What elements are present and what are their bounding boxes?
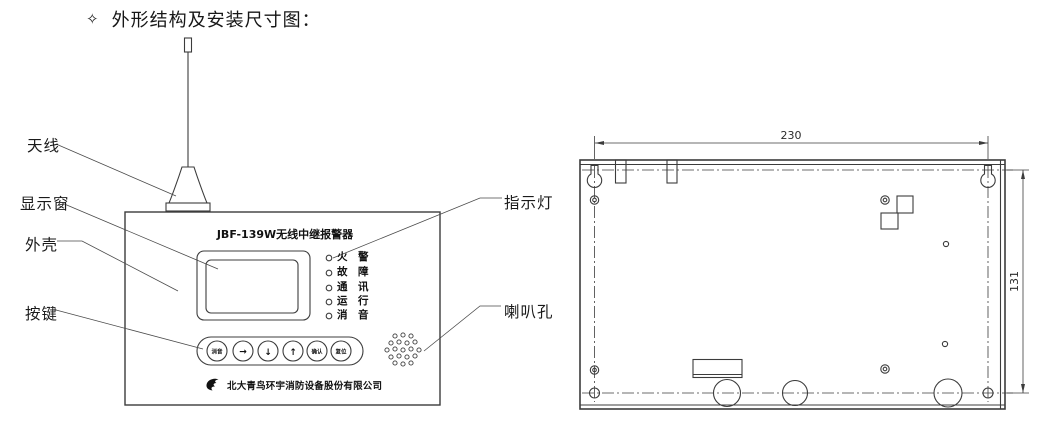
speaker-holes-cluster — [385, 333, 421, 366]
antenna-tip — [185, 38, 192, 52]
centerlines — [582, 166, 1013, 402]
led-comm — [326, 285, 332, 291]
antenna-drawing — [166, 38, 210, 211]
back-view-drawing — [580, 136, 1029, 409]
mounting-plate-outline — [580, 160, 1005, 409]
dim-arrow-top — [1021, 170, 1025, 179]
leader-antenna — [56, 144, 176, 196]
top-slot-1 — [616, 160, 627, 183]
button-confirm-label: 确认 — [311, 348, 323, 356]
led-label-fire: 火 警 — [337, 252, 371, 263]
pilot-hole-bottom — [942, 341, 947, 346]
dimension-width-value: 230 — [781, 129, 802, 142]
button-mute-label: 消音 — [211, 348, 223, 356]
antenna-base — [166, 203, 210, 211]
leader-display-window — [62, 203, 218, 269]
led-indicators — [326, 255, 332, 319]
leader-speaker — [424, 306, 501, 351]
device-model-title: JBF-139W无线中继报警器 — [196, 226, 374, 242]
front-view-drawing: 消音 → ↓ ↑ 确认 复位 — [56, 38, 502, 405]
pilot-hole-top — [943, 241, 948, 246]
company-name: 北大青鸟环宇消防设备股份有限公司 — [227, 378, 382, 392]
callout-speaker-holes: 喇叭孔 — [504, 300, 554, 322]
callout-housing: 外壳 — [25, 233, 58, 255]
led-label-comm: 通 讯 — [337, 282, 371, 293]
top-slot-2 — [667, 160, 677, 183]
dim-arrow-bottom — [1021, 384, 1025, 393]
jade-bird-logo-icon — [204, 376, 221, 393]
led-label-fault: 故 障 — [337, 267, 371, 278]
knockout-square-upper — [897, 196, 913, 213]
button-reset-label: 复位 — [334, 348, 347, 356]
led-label-mute: 消 音 — [337, 310, 371, 321]
knockout-square-lower — [881, 213, 898, 229]
screw-holes — [590, 196, 889, 374]
display-window-inner — [206, 260, 298, 313]
dim-arrow-right — [979, 141, 988, 145]
callout-indicator-lights: 指示灯 — [504, 191, 554, 213]
antenna-cone — [169, 167, 207, 203]
keypad-buttons — [207, 341, 351, 361]
callout-keys: 按键 — [25, 302, 58, 324]
brand-row: 北大青鸟环宇消防设备股份有限公司 — [204, 376, 382, 393]
led-fire — [326, 255, 332, 261]
led-run — [326, 299, 332, 305]
callout-antenna: 天线 — [27, 134, 60, 156]
manual-figure-page: ✧ 外形结构及安装尺寸图： — [0, 0, 1055, 421]
callout-display-window: 显示窗 — [20, 192, 70, 214]
dim-arrow-left — [595, 141, 604, 145]
leader-keys — [56, 310, 203, 349]
leader-housing — [57, 241, 178, 291]
right-arrow-icon: → — [239, 348, 247, 358]
down-arrow-icon: ↓ — [264, 348, 272, 358]
led-fault — [326, 270, 332, 276]
dimension-height-value: 131 — [1008, 271, 1021, 292]
led-mute — [326, 313, 332, 319]
led-label-run: 运 行 — [337, 296, 371, 307]
display-window-outer — [197, 251, 310, 320]
up-arrow-icon: ↑ — [289, 348, 297, 358]
